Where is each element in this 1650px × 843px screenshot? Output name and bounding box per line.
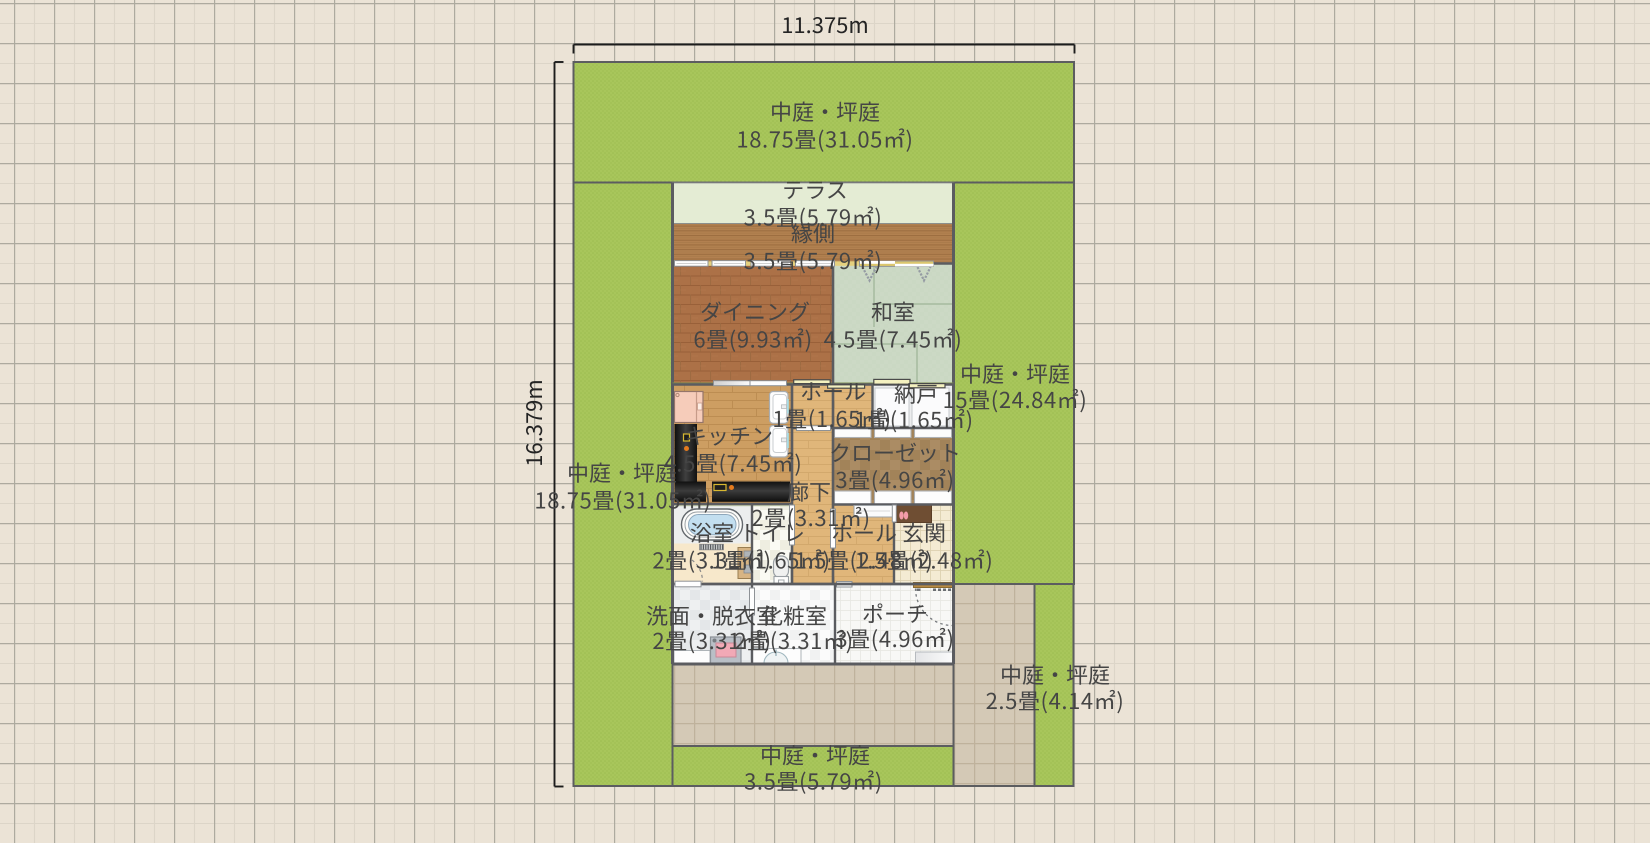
svg-text:3.5畳(5.79㎡): 3.5畳(5.79㎡)	[744, 244, 883, 276]
svg-text:11.375m: 11.375m	[781, 8, 869, 40]
svg-text:4.5畳(7.45㎡): 4.5畳(7.45㎡)	[824, 323, 963, 355]
svg-text:3畳(4.96㎡): 3畳(4.96㎡)	[835, 463, 954, 495]
svg-text:3.5畳(5.79㎡): 3.5畳(5.79㎡)	[744, 765, 883, 797]
svg-text:16.379m: 16.379m	[517, 379, 549, 467]
svg-text:6畳(9.93㎡): 6畳(9.93㎡)	[693, 323, 812, 355]
svg-text:4.5畳(7.45㎡): 4.5畳(7.45㎡)	[664, 447, 803, 479]
svg-text:1.5畳(2.48㎡): 1.5畳(2.48㎡)	[855, 544, 994, 576]
svg-text:18.75畳(31.05㎡): 18.75畳(31.05㎡)	[534, 484, 711, 516]
svg-text:1畳(1.65㎡): 1畳(1.65㎡)	[854, 403, 973, 435]
svg-text:3畳(4.96㎡): 3畳(4.96㎡)	[835, 622, 954, 654]
svg-text:18.75畳(31.05㎡): 18.75畳(31.05㎡)	[736, 123, 913, 155]
svg-text:2.5畳(4.14㎡): 2.5畳(4.14㎡)	[986, 684, 1125, 716]
